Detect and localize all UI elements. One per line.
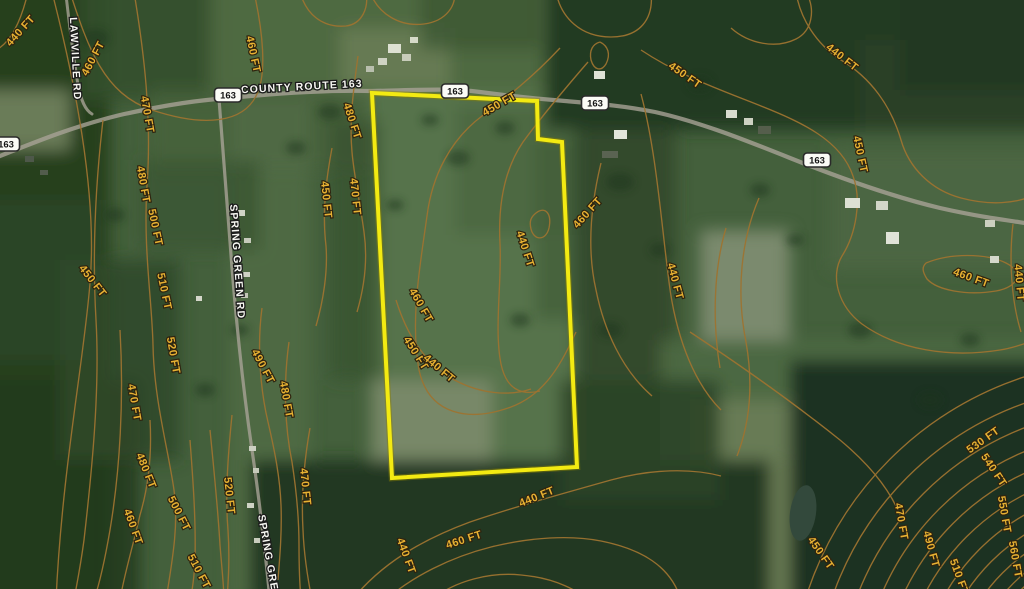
satellite-background [0, 0, 1024, 589]
shield-number: 163 [220, 91, 236, 102]
route-163-shield: 163 [215, 88, 242, 102]
route-163-shield: 163 [442, 84, 469, 98]
shield-number: 163 [587, 99, 603, 110]
shield-number: 163 [809, 156, 825, 167]
map-canvas[interactable]: 440 FT460 FT460 FT470 FT480 FT480 FT450 … [0, 0, 1024, 589]
route-163-shield: 163 [804, 153, 831, 167]
satellite-map[interactable]: 440 FT460 FT460 FT470 FT480 FT480 FT450 … [0, 0, 1024, 589]
shield-number: 163 [0, 140, 14, 151]
route-163-shield: 163 [0, 137, 20, 151]
shield-number: 163 [447, 87, 463, 98]
route-163-shield: 163 [582, 96, 609, 110]
